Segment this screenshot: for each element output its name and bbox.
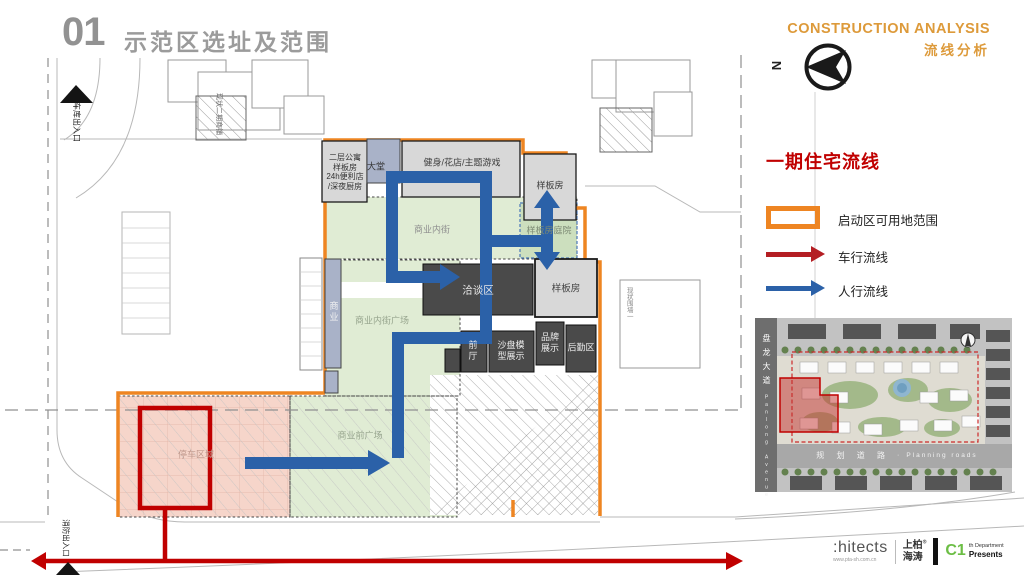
presents-label: Presents — [969, 550, 1004, 560]
slide-number: 01 — [62, 10, 105, 55]
brand-bottom-text: 海涛 — [903, 552, 927, 564]
footer-black-bar — [933, 538, 938, 565]
registered-mark: ® — [923, 540, 927, 546]
minimap-road-separator: · — [897, 452, 899, 459]
legend-title: 一期住宅流线 — [766, 148, 880, 174]
minimap-north-icon — [961, 333, 975, 347]
dept-text: th Department Presents — [969, 543, 1004, 559]
brand-top-text: 上柏 — [903, 540, 923, 551]
header-en-title: CONSTRUCTION ANALYSIS — [787, 21, 990, 37]
brand-top-line: 上柏® — [903, 540, 927, 552]
dept-code: C1 — [945, 543, 965, 559]
compass-n-label: N — [769, 61, 784, 70]
page-title: 示范区选址及范围 — [124, 23, 332, 57]
minimap-graphic — [755, 318, 1012, 492]
dept-sup-th: th — [969, 543, 974, 549]
header-cn-subtitle: 流线分析 — [924, 39, 990, 59]
minimap-road-bottom-en: Planning roads — [906, 452, 977, 459]
legend-item-boundary: 启动区可用地范围 — [838, 210, 938, 229]
dept-word: Department — [975, 543, 1004, 549]
department-block: C1 th Department Presents — [945, 543, 1003, 559]
compass-icon — [806, 46, 850, 89]
footer-logo: :hitects www.pta-sh.com.cn 上柏® 海涛 C1 th … — [833, 538, 1004, 565]
boundary-swatch — [766, 206, 820, 229]
red-arrow-icon — [766, 252, 812, 257]
dept-sup: th Department — [969, 543, 1004, 550]
logo-text: :hitects — [833, 540, 888, 556]
entrance-triangle-icons — [56, 85, 93, 575]
minimap-road-bottom: 规 划 道 路 · Planning roads — [788, 450, 1006, 461]
brand-name: 上柏® 海涛 — [903, 540, 927, 563]
minimap-road-bottom-cn: 规 划 道 路 — [816, 450, 890, 461]
blue-arrow-icon — [766, 286, 812, 291]
logo-url: www.pta-sh.com.cn — [833, 558, 876, 563]
legend-item-pedestrian: 人行流线 — [838, 281, 888, 300]
slide-canvas: 01 示范区选址及范围 CONSTRUCTION ANALYSIS 流线分析 N… — [0, 0, 1024, 576]
footer-divider — [895, 540, 896, 564]
logo-architects: :hitects www.pta-sh.com.cn — [833, 540, 888, 563]
legend-item-vehicle: 车行流线 — [838, 247, 888, 266]
